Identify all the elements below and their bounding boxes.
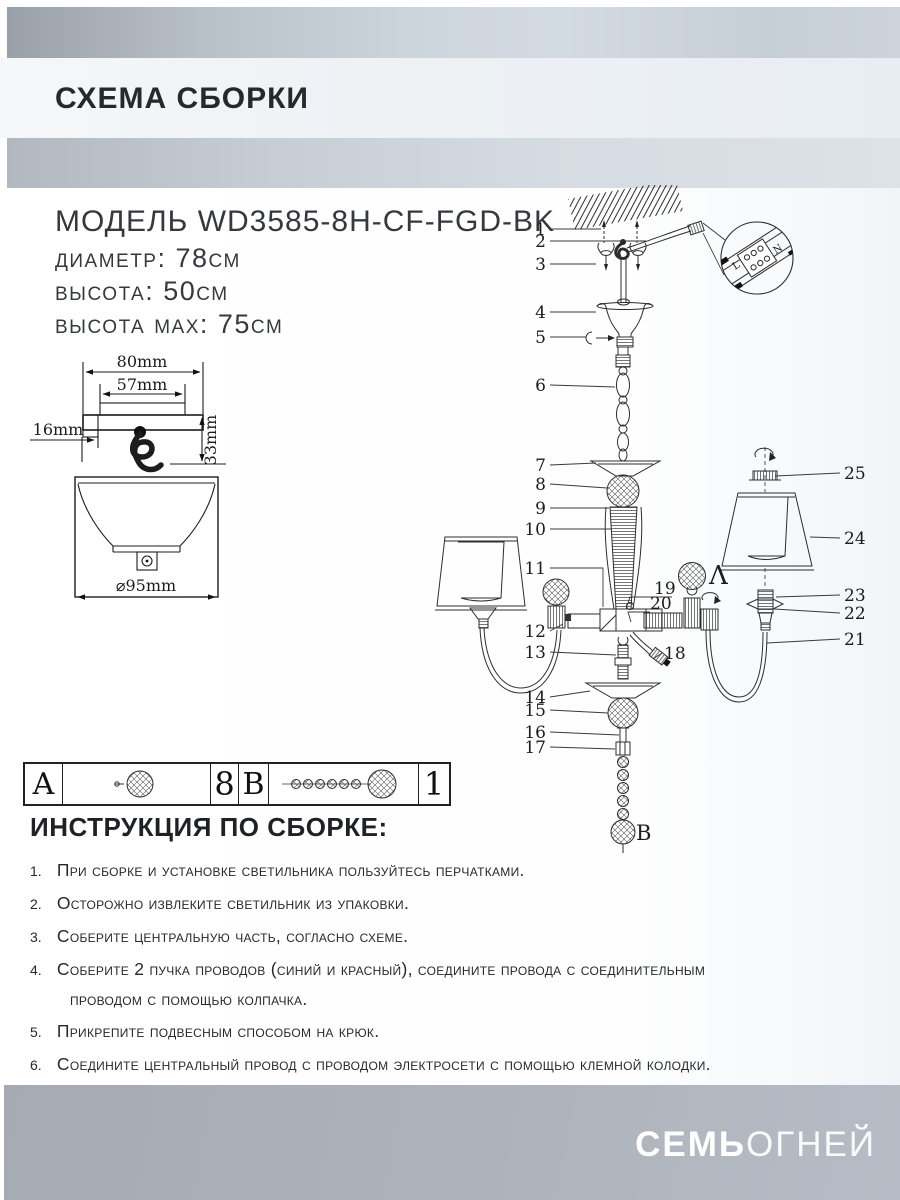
center-column [605,507,642,609]
brand-light: ОГНЕЙ [746,1125,876,1164]
part-b-qty: 1 [419,764,449,804]
callout-4: 4 [535,303,546,323]
lamp-socket [747,590,783,630]
brand-bold: СЕМЬ [635,1125,746,1164]
footer-band: СЕМЬОГНЕЙ [4,1085,900,1200]
instruction-text: Прикрепите подвесным способом на крюк. [57,1021,380,1041]
parts-table: A 8 B [23,762,451,806]
callout-leaders [550,229,840,749]
callout-8: 8 [535,475,546,495]
callout-6: 6 [535,376,546,396]
callout-24: 24 [844,529,866,549]
part-a-qty: 8 [211,764,239,804]
right-arm [706,630,767,702]
mounting-dimensions-drawing: 80mm 57mm 16mm 33mm ⌀95mm [20,350,250,612]
terminal-n-label: N [772,242,786,256]
bottom-bobeche [586,683,660,698]
instruction-number: 5. [30,1022,52,1042]
instruction-text: Соедините центральный провод с проводом … [57,1054,711,1074]
instruction-text: Осторожно извлеките светильник из упаков… [57,893,409,913]
canopy-setscrew [586,332,615,344]
instruction-item-2: 2. Осторожно извлеките светильник из упа… [30,893,878,914]
callout-25: 25 [844,464,866,484]
part-b-icon [269,764,419,804]
left-shade-holder [470,608,496,628]
instruction-number: 4. [30,960,52,980]
crystal-ball-8 [607,475,639,507]
instruction-text: При сборке и установке светильника польз… [57,860,525,880]
callout-18: 18 [664,644,686,664]
part-b-letter: B [239,764,269,804]
dim-16mm: 16mm [33,420,84,439]
mid-gradient-band [7,138,900,188]
ceiling-hook [616,239,629,258]
callout-23: 23 [844,586,866,606]
top-bobeche [591,461,660,476]
instruction-item-6: 6. Соедините центральный провод с провод… [30,1054,878,1075]
instruction-text: Соберите центральную часть, согласно схе… [57,926,408,946]
callout-5: 5 [535,328,546,348]
callout-2: 2 [535,232,546,252]
dim-33mm: 33mm [201,415,220,466]
crystal-ball-b [611,820,635,844]
bottom-cube [616,742,630,755]
instruction-number: 1. [30,861,52,881]
crystal-ball-15 [608,698,638,728]
instruction-item-5: 5. Прикрепите подвесным способом на крюк… [30,1021,878,1042]
part-a-letter: A [25,764,63,804]
instruction-item-1: 1. При сборке и установке светильника по… [30,860,878,881]
terminal-block-detail: L N [713,221,800,294]
callout-11: 11 [524,559,546,579]
instruction-text-continued: проводом с помощью колпачка. [30,989,878,1009]
callout-20: 20 [650,594,672,614]
instruction-item-3: 3. Соберите центральную часть, согласно … [30,926,878,947]
left-arm [480,628,561,693]
brand-logo: СЕМЬОГНЕЙ [635,1125,876,1165]
callout-9: 9 [535,499,546,519]
instruction-text: Соберите 2 пучка проводов (синий и красн… [57,959,705,979]
instructions-list: 1. При сборке и установке светильника по… [30,860,878,1087]
crystal-ball-left [543,579,569,605]
top-gradient-band [7,7,900,58]
dim-95mm: ⌀95mm [116,576,176,595]
header-band: СХЕМА СБОРКИ [0,58,900,138]
part-a-icon [63,764,211,804]
callout-3: 3 [535,255,546,275]
model-height: высота: 50см [55,276,229,307]
instruction-number: 3. [30,927,52,947]
model-diameter: диаметр: 78см [55,243,241,274]
instructions-title: ИНСТРУКЦИЯ ПО СБОРКЕ: [30,812,388,843]
page-title: СХЕМА СБОРКИ [55,82,309,116]
right-lampshade [720,493,814,570]
dim-80mm: 80mm [117,352,168,371]
callout-22: 22 [844,604,866,624]
instruction-number: 2. [30,894,52,914]
ceiling-hatch [568,185,683,230]
chandelier-diagram: L N [420,185,900,875]
callout-10: 10 [524,520,546,540]
right-ribbed-tube [644,613,682,628]
model-height-max: высота max: 75см [55,309,283,340]
mains-wire [627,221,725,275]
callout-17: 17 [524,738,546,758]
instruction-item-4: 4. Соберите 2 пучка проводов (синий и кр… [30,959,878,1009]
callout-15: 15 [524,701,546,721]
canopy [597,303,653,348]
hanging-chain [617,367,630,461]
part-a-label: Λ [708,561,729,591]
dim-57mm: 57mm [117,375,168,394]
right-arm-coupler [684,598,700,628]
callout-13: 13 [524,643,546,663]
left-lampshade [435,537,527,610]
bead-chain [618,757,629,820]
instruction-number: 6. [30,1055,52,1075]
crystal-ball-a [679,563,706,590]
callout-21: 21 [844,630,866,650]
terminal-l-label: L [731,259,743,272]
callout-12: 12 [524,622,546,642]
callout-7: 7 [535,456,546,476]
part-b-label: B [636,821,651,845]
